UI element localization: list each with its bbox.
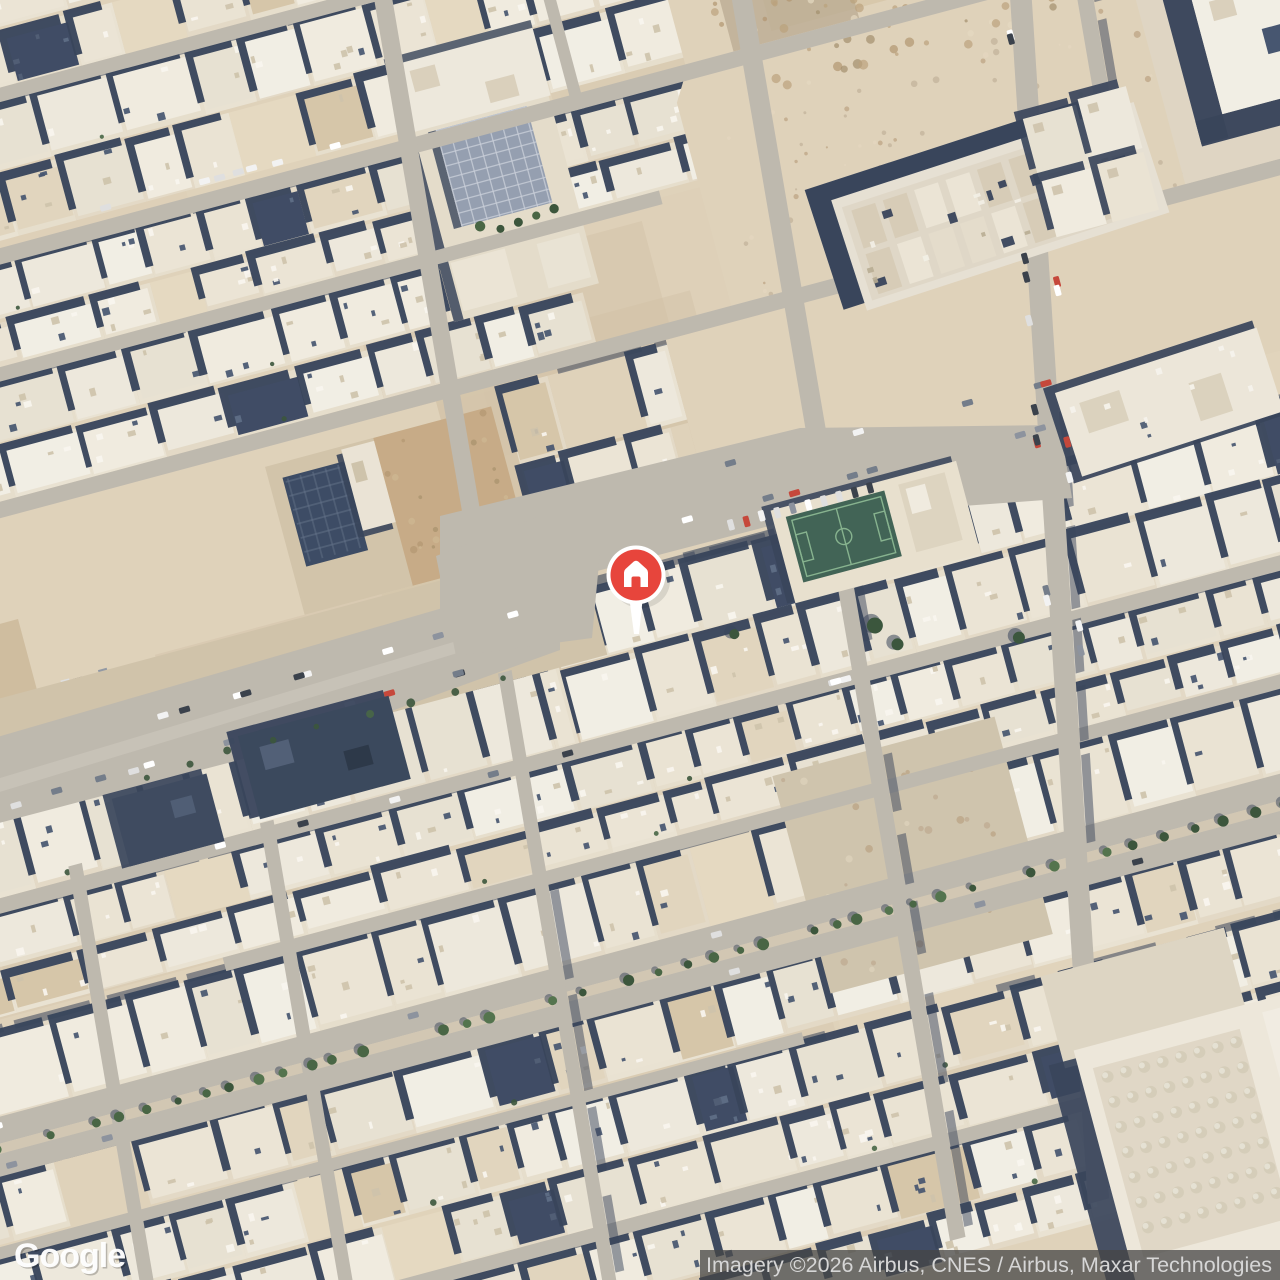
svg-text:Imagery ©2026 Airbus, CNES / A: Imagery ©2026 Airbus, CNES / Airbus, Max… <box>706 1253 1272 1277</box>
svg-text:Google: Google <box>14 1237 125 1275</box>
